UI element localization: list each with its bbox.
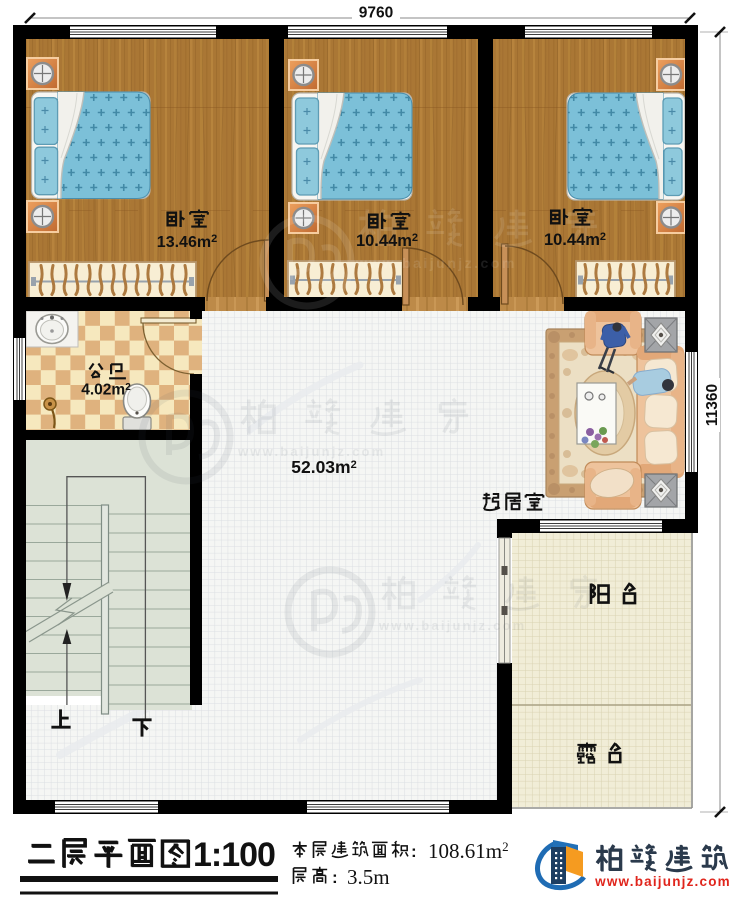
svg-text:11360: 11360 — [704, 384, 721, 426]
svg-text:10.44m2: 10.44m2 — [544, 231, 606, 249]
svg-text:4.02m2: 4.02m2 — [81, 382, 131, 399]
svg-text:10.44m2: 10.44m2 — [356, 232, 418, 250]
svg-text:1:100: 1:100 — [193, 836, 275, 874]
svg-text:108.61m2: 108.61m2 — [428, 839, 509, 863]
svg-text:3.5m: 3.5m — [347, 865, 390, 889]
svg-text:13.46m2: 13.46m2 — [157, 233, 217, 251]
svg-text:52.03m2: 52.03m2 — [291, 457, 356, 477]
svg-text::: : — [411, 842, 417, 861]
svg-text:www.baijunjz.com: www.baijunjz.com — [594, 874, 731, 889]
svg-text:www.baijunjz.com: www.baijunjz.com — [378, 618, 526, 633]
svg-text:9760: 9760 — [359, 5, 393, 22]
svg-text::: : — [332, 868, 338, 887]
svg-text:www.baijunjz.com: www.baijunjz.com — [355, 255, 517, 271]
